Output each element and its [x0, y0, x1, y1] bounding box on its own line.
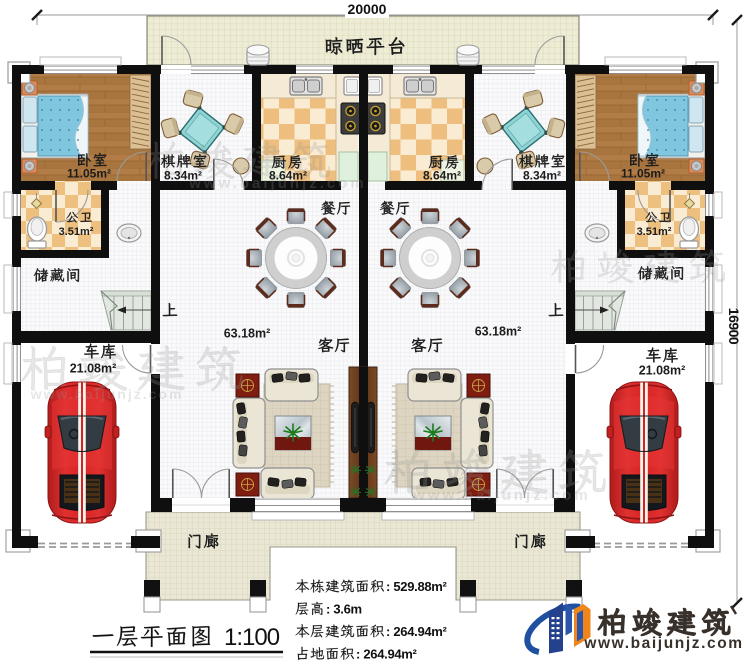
svg-text:63.18m²: 63.18m² — [224, 327, 271, 341]
svg-text:: 264.94m²: : 264.94m² — [356, 647, 418, 662]
svg-text:11.05m²: 11.05m² — [621, 166, 665, 180]
svg-text:63.18m²: 63.18m² — [475, 325, 522, 339]
svg-text:8.64m²: 8.64m² — [423, 168, 461, 182]
svg-text:3.51m²: 3.51m² — [59, 226, 94, 238]
svg-text:8.64m²: 8.64m² — [269, 168, 307, 182]
svg-text:1:100: 1:100 — [224, 624, 280, 651]
svg-text:8.34m²: 8.34m² — [523, 168, 561, 182]
svg-text:www.baijunjz.com: www.baijunjz.com — [412, 487, 590, 504]
svg-text:www.baijunjz.com: www.baijunjz.com — [583, 635, 743, 652]
svg-text:www.baijunjz.com: www.baijunjz.com — [30, 386, 184, 402]
svg-text:3.51m²: 3.51m² — [637, 226, 672, 238]
svg-text:16900: 16900 — [726, 308, 742, 345]
svg-text:11.05m²: 11.05m² — [67, 166, 111, 180]
svg-text:: 264.94m²: : 264.94m² — [386, 624, 448, 639]
svg-text:: 3.6m: : 3.6m — [326, 602, 362, 617]
svg-text:21.08m²: 21.08m² — [639, 364, 686, 378]
svg-text:21.08m²: 21.08m² — [70, 362, 117, 376]
svg-text:8.34m²: 8.34m² — [164, 168, 202, 182]
svg-text:: 529.88m²: : 529.88m² — [386, 579, 448, 594]
svg-text:20000: 20000 — [348, 1, 387, 17]
